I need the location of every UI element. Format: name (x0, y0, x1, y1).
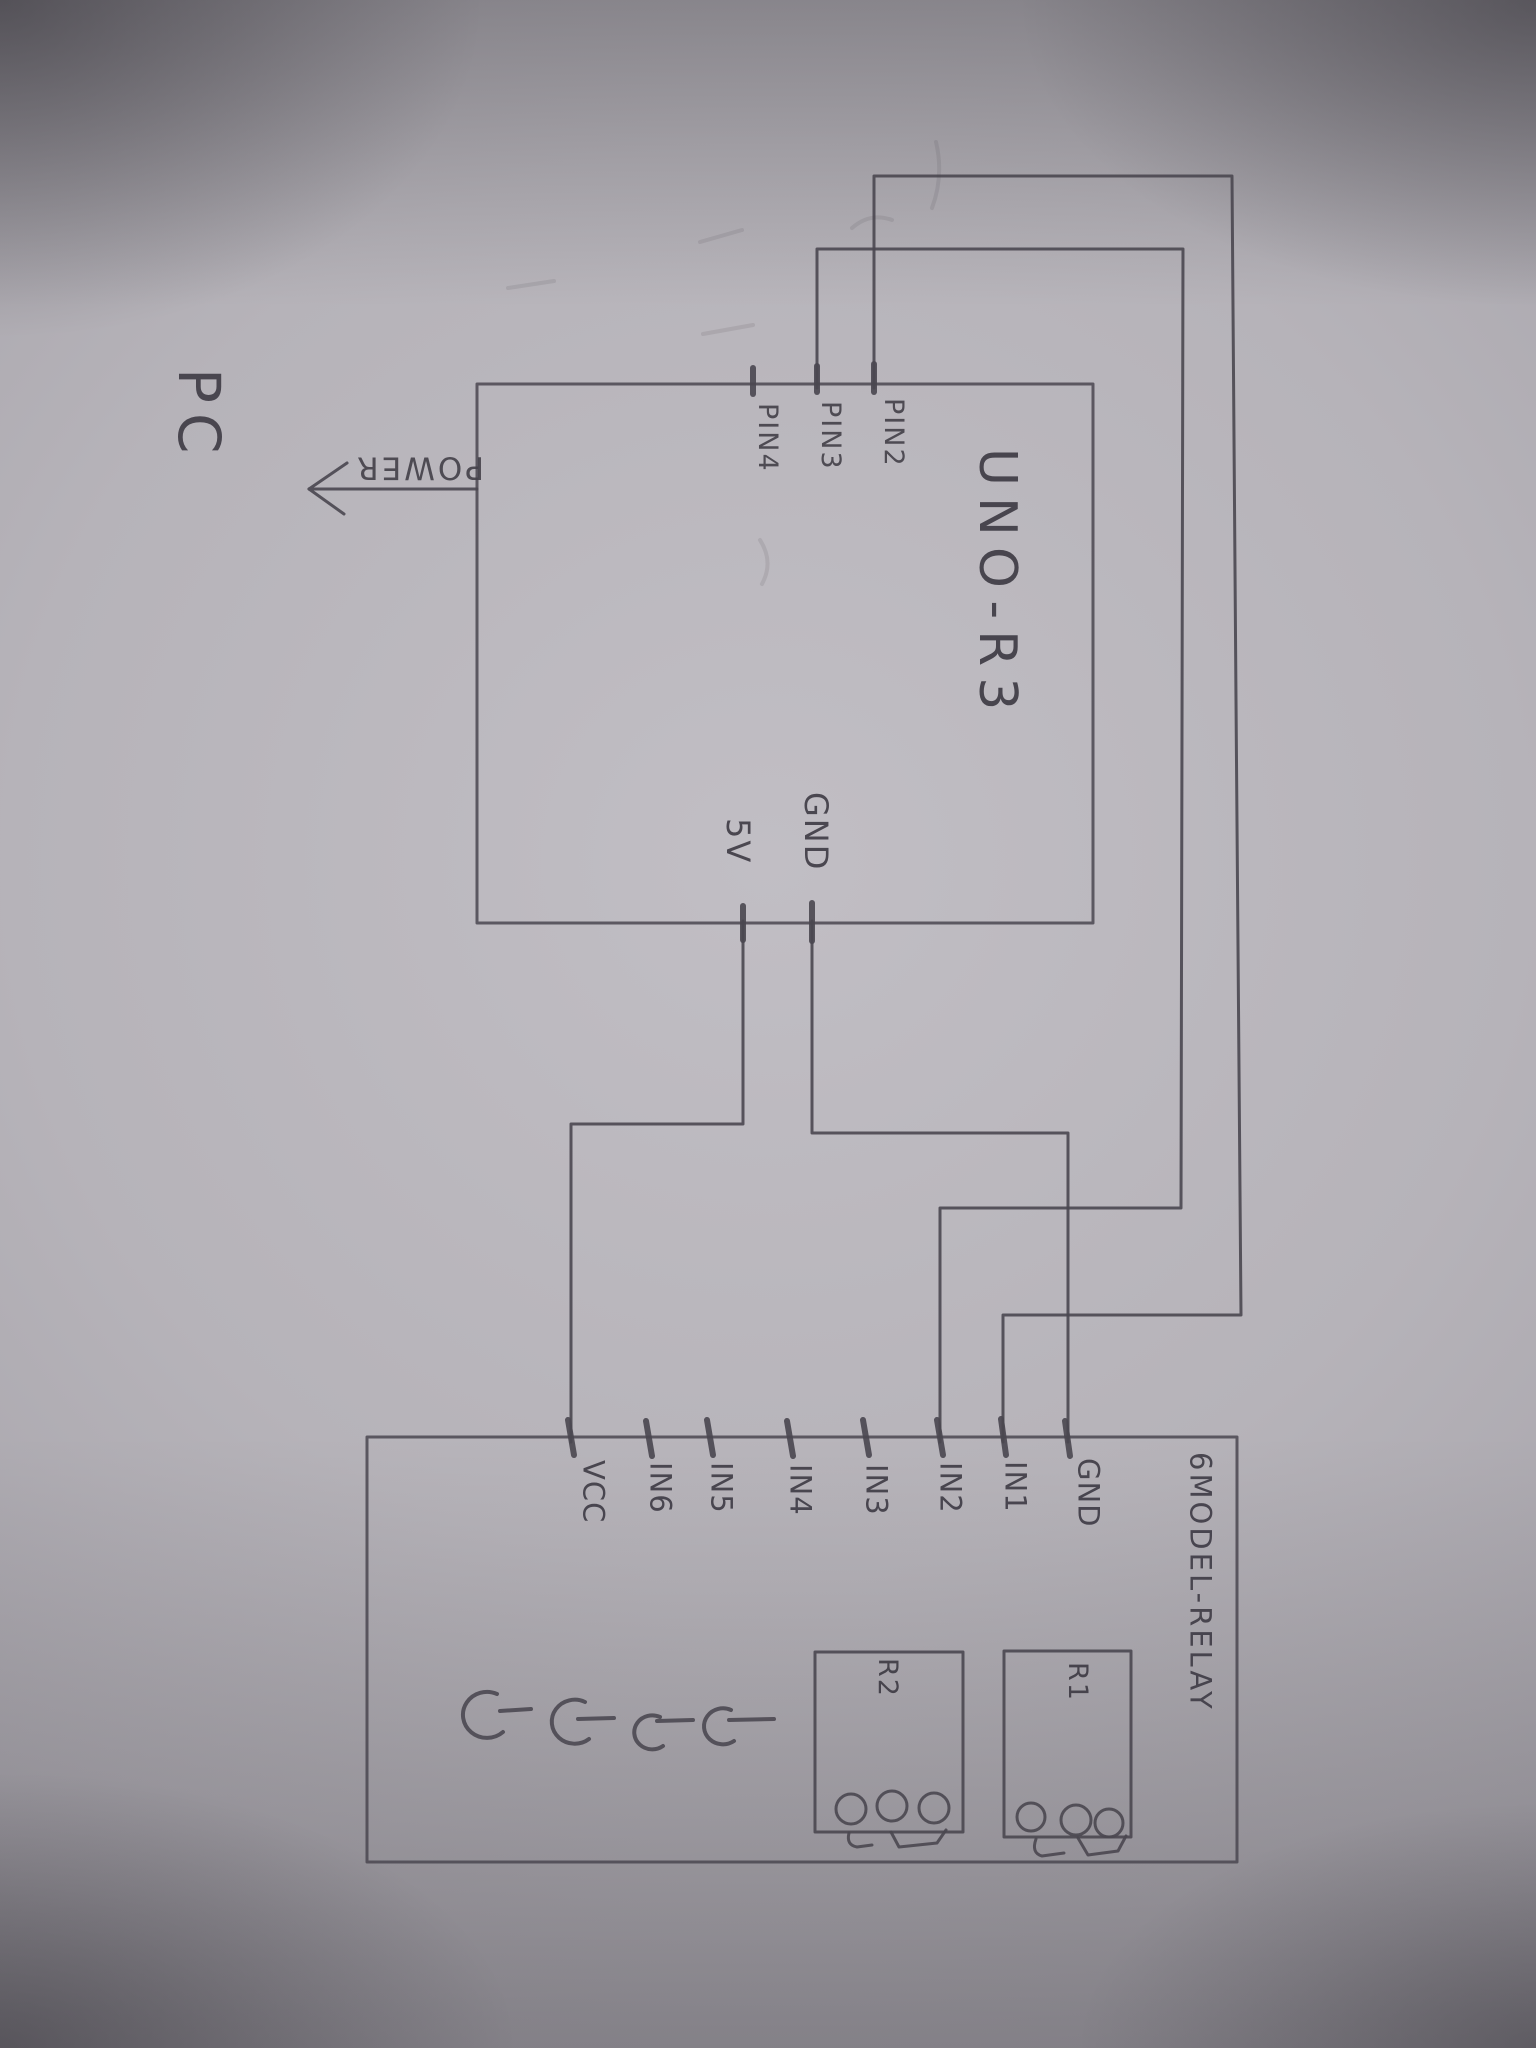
wire-5v-to-vcc (571, 921, 743, 1442)
uno-pin-label-pin3: PIN3 (815, 401, 845, 471)
r1-terminal-hook (1034, 1839, 1064, 1856)
relay-pin-label-in2: IN2 (934, 1462, 966, 1514)
uno-pin-label-5v: 5V (719, 818, 755, 864)
wire-pin3-to-in2 (817, 249, 1183, 1442)
wire-pin2-to-in1 (874, 176, 1241, 1442)
hand-drawn-wiring-diagram-photo: PC POWER UNO-R3 PIN2 PIN3 PIN4 5V GND 6M… (0, 0, 1536, 2048)
relay-output-hooks (463, 1692, 774, 1749)
uno-title: UNO-R3 (968, 448, 1026, 721)
pencil-linework (0, 0, 1536, 2048)
r1-contact-circle (1095, 1809, 1123, 1837)
relay-title: 6MODEL-RELAY (1184, 1452, 1216, 1712)
r2-terminal-hook (848, 1833, 872, 1847)
uno-pin-label-pin2: PIN2 (878, 398, 908, 468)
r2-contact-circle (919, 1793, 949, 1823)
r1-contact-circle (1061, 1805, 1091, 1835)
r1-contact-circle (1017, 1803, 1045, 1831)
relay-pin-label-in1: IN1 (999, 1461, 1031, 1513)
relay-pin-label-in3: IN3 (860, 1464, 892, 1516)
power-label: POWER (326, 450, 484, 485)
r2-contact-circle (836, 1794, 866, 1824)
uno-pin-label-pin4: PIN4 (752, 403, 782, 473)
relay-pin-label-in5: IN5 (705, 1462, 737, 1514)
relay-module-r1-label: R1 (1062, 1662, 1092, 1702)
uno-pin-ticks (753, 364, 874, 394)
r1-terminal-hook (1078, 1836, 1126, 1855)
relay-pin-label-in4: IN4 (784, 1464, 816, 1516)
relay-pin-label-gnd: GND (1072, 1458, 1104, 1528)
relay-pin-label-vcc: VCC (577, 1460, 609, 1523)
pc-label: PC (166, 368, 231, 463)
r2-contact-circle (877, 1791, 907, 1821)
relay-module-r2-label: R2 (872, 1658, 902, 1698)
uno-pin-label-gnd: GND (797, 792, 833, 871)
relay-pin-label-in6: IN6 (644, 1462, 676, 1514)
